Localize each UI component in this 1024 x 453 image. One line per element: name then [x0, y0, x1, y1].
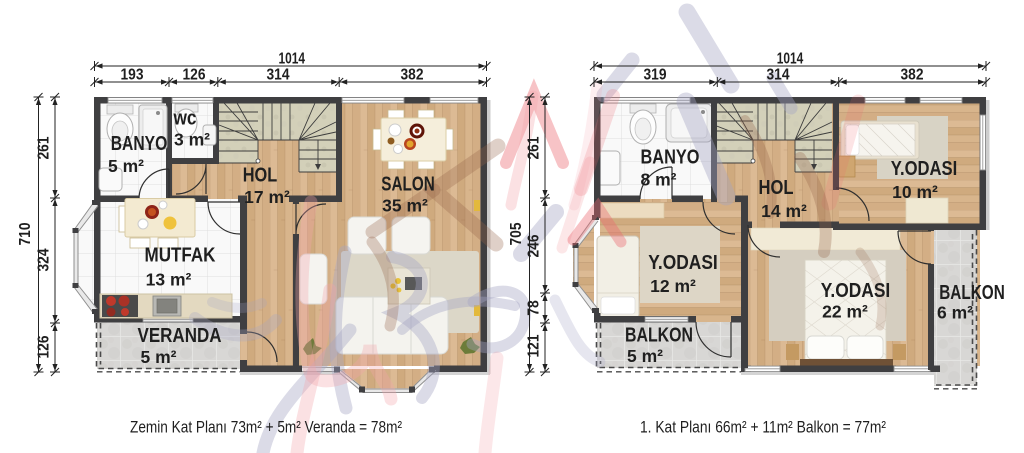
svg-text:126: 126 — [183, 67, 206, 84]
svg-text:17 m²: 17 m² — [244, 187, 290, 207]
svg-text:10 m²: 10 m² — [892, 182, 938, 202]
svg-text:Y.ODASI: Y.ODASI — [891, 158, 958, 180]
svg-text:705: 705 — [508, 222, 525, 245]
svg-text:5 m²: 5 m² — [108, 156, 144, 176]
svg-text:MUTFAK: MUTFAK — [145, 245, 216, 267]
svg-text:13 m²: 13 m² — [146, 270, 192, 290]
svg-text:wc: wc — [173, 108, 197, 130]
svg-text:1014: 1014 — [777, 51, 804, 68]
svg-text:324: 324 — [36, 248, 53, 271]
svg-text:314: 314 — [767, 67, 790, 84]
svg-text:VERANDA: VERANDA — [138, 325, 222, 347]
svg-text:1. Kat Planı 66m² + 11m² Balko: 1. Kat Planı 66m² + 11m² Balkon = 77m² — [640, 419, 886, 437]
svg-text:319: 319 — [644, 67, 667, 84]
svg-text:8 m²: 8 m² — [641, 170, 677, 190]
svg-text:Y.ODASI: Y.ODASI — [648, 252, 718, 274]
svg-text:121: 121 — [526, 334, 543, 357]
svg-text:Zemin Kat Planı 73m² + 5m² Ver: Zemin Kat Planı 73m² + 5m² Veranda = 78m… — [130, 419, 402, 437]
svg-text:35 m²: 35 m² — [382, 196, 428, 216]
svg-text:193: 193 — [121, 67, 144, 84]
svg-text:6 m²: 6 m² — [937, 303, 973, 323]
svg-text:246: 246 — [526, 234, 543, 257]
svg-text:BALKON: BALKON — [625, 325, 693, 347]
svg-text:BANYO: BANYO — [641, 147, 700, 169]
svg-text:5 m²: 5 m² — [141, 347, 177, 367]
svg-text:261: 261 — [526, 136, 543, 159]
svg-text:382: 382 — [901, 67, 924, 84]
svg-text:5 m²: 5 m² — [627, 346, 663, 366]
svg-text:78: 78 — [526, 300, 543, 316]
svg-text:22 m²: 22 m² — [822, 302, 868, 322]
svg-text:261: 261 — [36, 136, 53, 159]
svg-text:SALON: SALON — [381, 174, 435, 196]
svg-text:3 m²: 3 m² — [174, 130, 210, 150]
svg-text:BALKON: BALKON — [939, 282, 1005, 304]
svg-text:12 m²: 12 m² — [650, 276, 696, 296]
svg-text:710: 710 — [17, 222, 34, 245]
svg-text:382: 382 — [401, 67, 424, 84]
svg-text:BANYO: BANYO — [111, 133, 168, 155]
svg-text:14 m²: 14 m² — [761, 201, 807, 221]
svg-text:Y.ODASI: Y.ODASI — [821, 280, 891, 302]
svg-text:HOL: HOL — [759, 177, 794, 199]
svg-text:1014: 1014 — [278, 51, 305, 68]
svg-text:314: 314 — [267, 67, 290, 84]
svg-text:HOL: HOL — [243, 165, 278, 187]
svg-text:126: 126 — [36, 335, 53, 358]
